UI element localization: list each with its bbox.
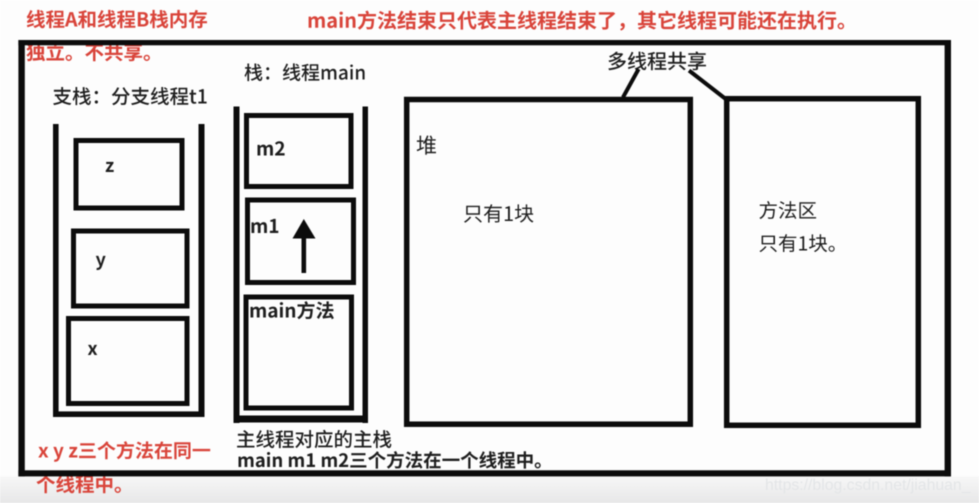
- svg-text:https://blog.csdn.net/jiahuan_: https://blog.csdn.net/jiahuan_: [765, 477, 971, 494]
